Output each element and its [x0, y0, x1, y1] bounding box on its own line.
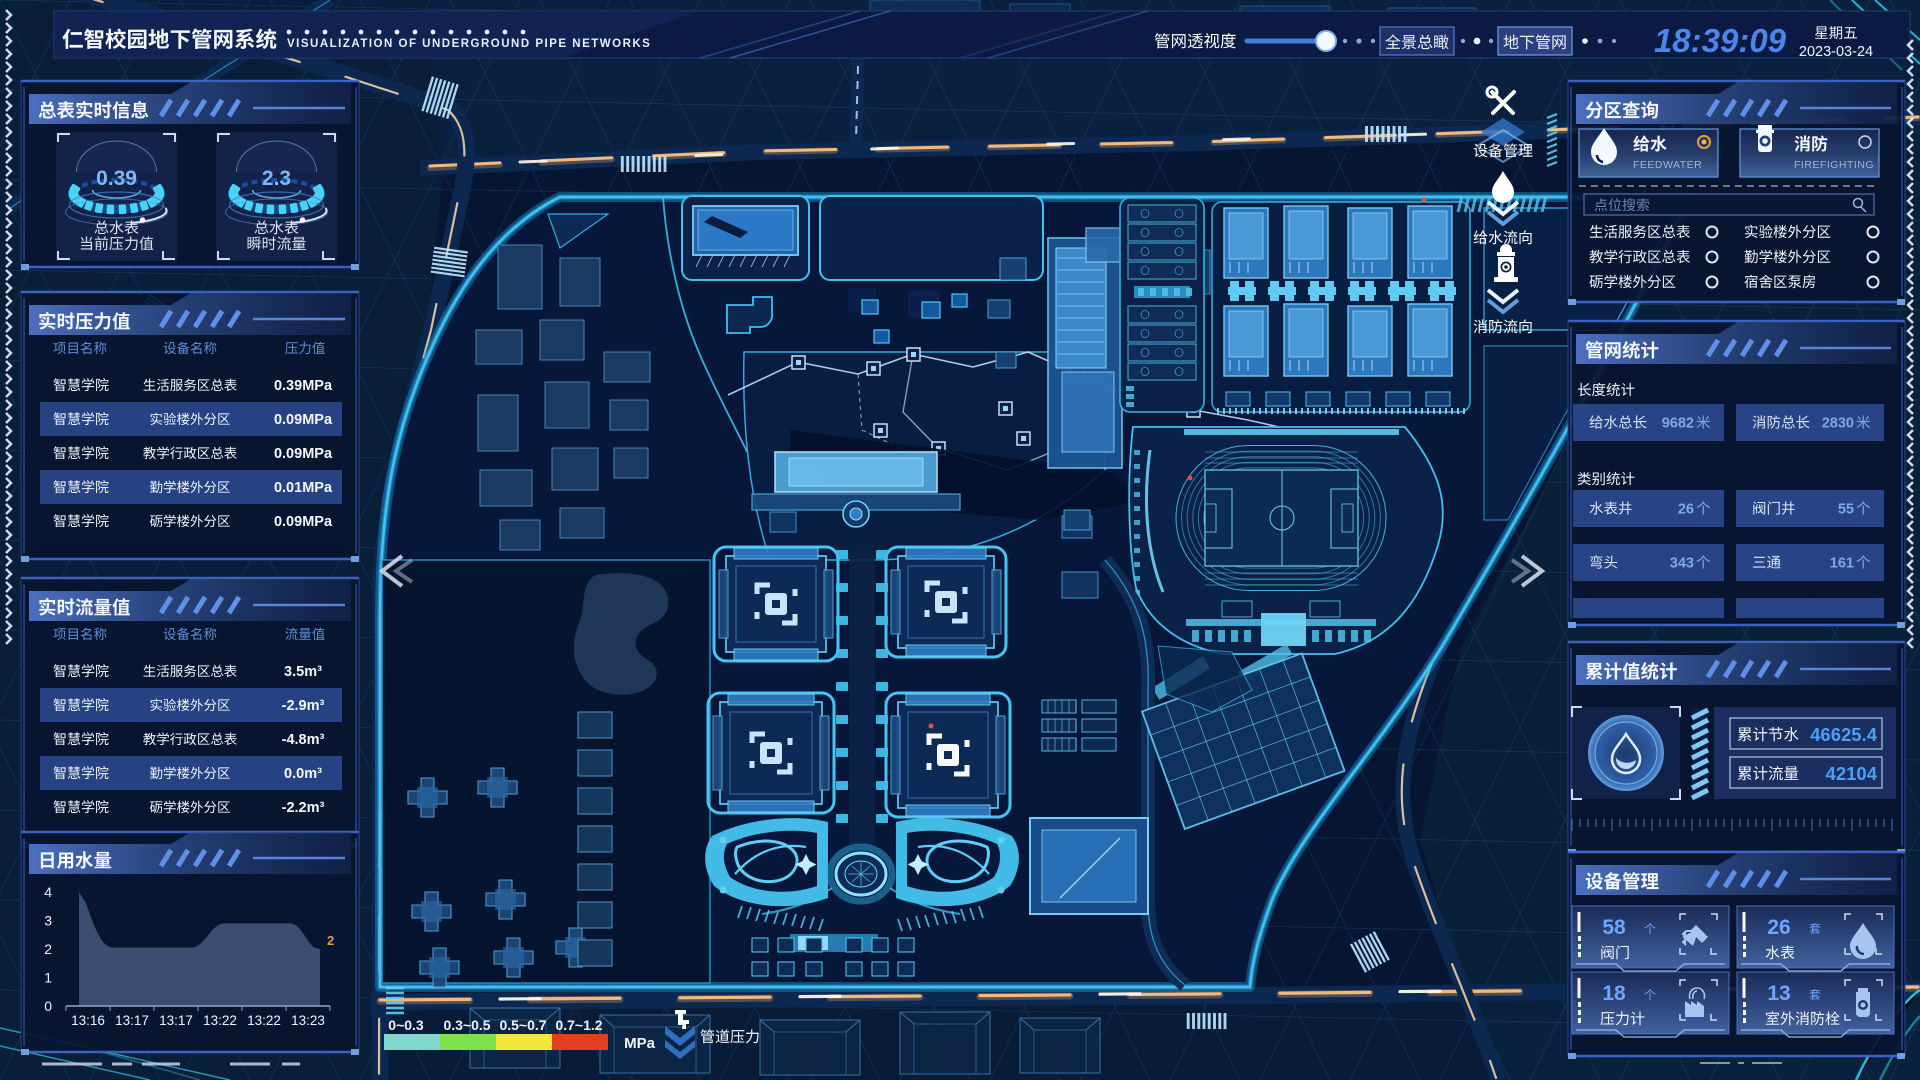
svg-text:0.0m³: 0.0m³ [284, 766, 322, 782]
svg-text:0.09MPa: 0.09MPa [274, 412, 333, 428]
svg-text:-2.2m³: -2.2m³ [282, 800, 325, 816]
svg-text:0.3~0.5: 0.3~0.5 [443, 1017, 490, 1033]
svg-text:0: 0 [44, 998, 52, 1014]
svg-text:0.01MPa: 0.01MPa [274, 480, 333, 496]
svg-text:2.3: 2.3 [262, 167, 291, 190]
svg-text:MPa: MPa [624, 1035, 656, 1052]
svg-text:1: 1 [44, 970, 52, 986]
svg-text:FEEDWATER: FEEDWATER [1633, 159, 1702, 171]
svg-text:3.5m³: 3.5m³ [284, 664, 322, 680]
svg-text:343: 343 [1670, 556, 1694, 572]
svg-text:VISUALIZATION OF UNDERGROUND: VISUALIZATION OF UNDERGROUND PIPE NETWOR… [287, 38, 651, 50]
svg-text:13:23: 13:23 [291, 1013, 325, 1028]
svg-text:0.39: 0.39 [96, 167, 137, 190]
svg-text:0.39MPa: 0.39MPa [274, 378, 333, 394]
svg-text:FIREFIGHTING: FIREFIGHTING [1794, 159, 1874, 171]
svg-text:26: 26 [1678, 502, 1694, 518]
svg-text:2830: 2830 [1822, 416, 1854, 432]
svg-text:13:22: 13:22 [247, 1013, 281, 1028]
svg-text:13:16: 13:16 [71, 1013, 105, 1028]
svg-text:2023-03-24: 2023-03-24 [1799, 44, 1873, 60]
svg-text:42104: 42104 [1826, 763, 1878, 784]
svg-text:-4.8m³: -4.8m³ [282, 732, 325, 748]
svg-text:0.7~1.2: 0.7~1.2 [555, 1017, 602, 1033]
svg-text:55: 55 [1838, 502, 1854, 518]
svg-text:13:17: 13:17 [159, 1013, 193, 1028]
svg-text:18:39:09: 18:39:09 [1654, 22, 1787, 59]
svg-text:0.5~0.7: 0.5~0.7 [499, 1017, 546, 1033]
svg-text:58: 58 [1602, 916, 1626, 939]
svg-text:3: 3 [44, 913, 52, 929]
svg-text:46625.4: 46625.4 [1810, 724, 1878, 745]
svg-text:0.09MPa: 0.09MPa [274, 446, 333, 462]
svg-text:13:22: 13:22 [203, 1013, 237, 1028]
svg-text:18: 18 [1602, 982, 1626, 1005]
svg-text:13: 13 [1767, 982, 1790, 1005]
svg-text:2: 2 [327, 933, 334, 948]
svg-text:26: 26 [1767, 916, 1790, 939]
svg-text:9682: 9682 [1662, 416, 1694, 432]
svg-text:-2.9m³: -2.9m³ [282, 698, 325, 714]
svg-text:0~0.3: 0~0.3 [388, 1017, 424, 1033]
svg-text:13:17: 13:17 [115, 1013, 149, 1028]
svg-text:4: 4 [44, 884, 52, 900]
svg-text:0.09MPa: 0.09MPa [274, 514, 333, 530]
svg-text:161: 161 [1830, 556, 1854, 572]
svg-text:2: 2 [44, 941, 52, 957]
